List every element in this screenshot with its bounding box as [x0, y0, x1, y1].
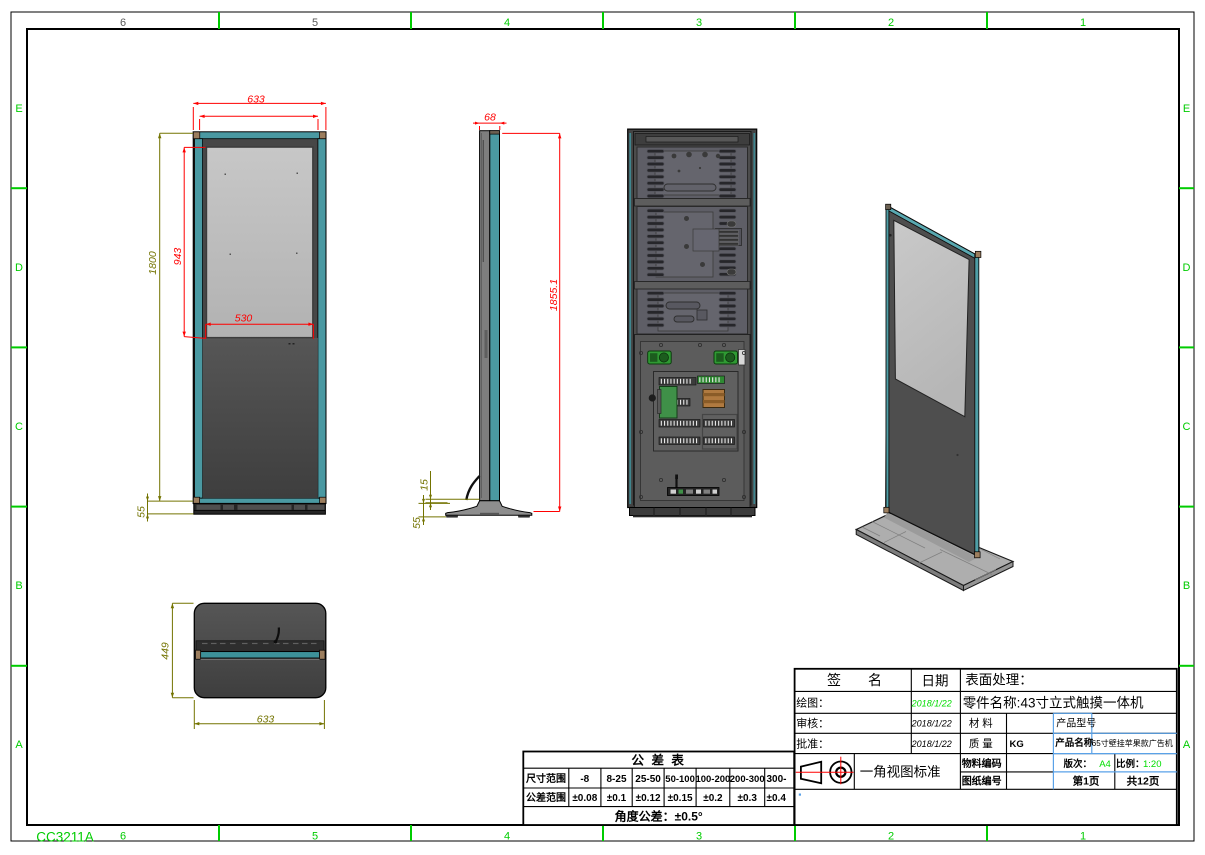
svg-text:2018/1/22: 2018/1/22: [911, 719, 952, 729]
svg-text:A: A: [1183, 739, 1191, 751]
svg-text:共12页: 共12页: [1127, 775, 1160, 788]
svg-text:图纸编号: 图纸编号: [962, 775, 1002, 788]
svg-text:8-25: 8-25: [606, 774, 626, 785]
svg-text:±0.4: ±0.4: [767, 793, 787, 804]
svg-text:产品名称: 产品名称: [1055, 737, 1094, 749]
svg-text:5: 5: [312, 831, 318, 843]
svg-text:1855.1: 1855.1: [548, 279, 560, 311]
svg-text:C: C: [15, 421, 23, 433]
svg-text:D: D: [1183, 262, 1191, 274]
svg-text:绘图：: 绘图：: [796, 696, 829, 710]
svg-text:尺寸范围: 尺寸范围: [526, 772, 566, 785]
svg-text:一角视图标准: 一角视图标准: [860, 765, 941, 780]
svg-text:表面处理：: 表面处理：: [965, 672, 1033, 687]
svg-text:A: A: [15, 739, 23, 751]
svg-text:68: 68: [484, 112, 496, 124]
svg-text:-8: -8: [580, 774, 589, 785]
svg-text:6: 6: [120, 831, 126, 843]
svg-text:5: 5: [312, 17, 318, 29]
svg-text:产品型号: 产品型号: [1056, 716, 1096, 729]
svg-text:530: 530: [235, 313, 253, 325]
svg-text:1: 1: [1080, 831, 1086, 843]
svg-text:D: D: [15, 262, 23, 274]
svg-text:2018/1/22: 2018/1/22: [911, 698, 952, 708]
svg-text:签: 签: [827, 672, 841, 688]
svg-text:1: 1: [1080, 17, 1086, 29]
svg-text:公 差 表: 公 差 表: [631, 752, 685, 767]
svg-text:版次：: 版次：: [1063, 758, 1093, 770]
svg-text:4: 4: [504, 17, 510, 29]
svg-text:E: E: [1183, 103, 1190, 115]
svg-text:300-: 300-: [767, 774, 787, 785]
svg-text:±0.08: ±0.08: [572, 793, 597, 804]
svg-text:审核：: 审核：: [796, 716, 829, 730]
svg-text:3: 3: [696, 17, 702, 29]
svg-text:C: C: [1183, 421, 1191, 433]
svg-text:2: 2: [888, 831, 894, 843]
svg-text:633: 633: [257, 713, 275, 725]
svg-text:质 量: 质 量: [969, 738, 993, 750]
svg-text:第1页: 第1页: [1073, 775, 1100, 788]
svg-text:角度公差：±0.5°: 角度公差：±0.5°: [615, 808, 703, 823]
svg-text:±0.12: ±0.12: [636, 793, 661, 804]
svg-text:±0.2: ±0.2: [703, 793, 723, 804]
svg-text:633: 633: [247, 93, 265, 105]
svg-text:±0.3: ±0.3: [738, 793, 758, 804]
svg-text:批准：: 批准：: [796, 737, 829, 751]
svg-text:15: 15: [419, 479, 431, 491]
svg-text:2: 2: [888, 17, 894, 29]
svg-text:CC3211A: CC3211A: [36, 830, 94, 845]
svg-text:A4: A4: [1099, 759, 1111, 770]
svg-text:名: 名: [868, 672, 882, 688]
svg-text:比例：: 比例：: [1116, 758, 1145, 770]
svg-text:零件名称:43寸立式触摸一体机: 零件名称:43寸立式触摸一体机: [963, 695, 1144, 710]
svg-text:50-100: 50-100: [665, 774, 695, 785]
svg-text:100-200: 100-200: [695, 774, 730, 785]
svg-text:B: B: [15, 580, 22, 592]
svg-text:公差范围: 公差范围: [526, 791, 566, 804]
svg-text:±0.1: ±0.1: [607, 793, 627, 804]
svg-text:材 料: 材 料: [969, 717, 993, 730]
svg-text:1:20: 1:20: [1143, 759, 1162, 770]
svg-text:2018/1/22: 2018/1/22: [911, 739, 952, 749]
svg-text:KG: KG: [1010, 739, 1024, 750]
svg-text:3: 3: [696, 831, 702, 843]
svg-text:943: 943: [172, 248, 184, 266]
svg-text:4: 4: [504, 831, 510, 843]
svg-text:物料编码: 物料编码: [962, 757, 1002, 770]
svg-text:E: E: [15, 103, 22, 115]
svg-text:200-300: 200-300: [730, 774, 765, 785]
svg-text:±0.15: ±0.15: [668, 793, 693, 804]
svg-text:B: B: [1183, 580, 1190, 592]
svg-text:55: 55: [411, 517, 423, 529]
svg-text:6: 6: [120, 17, 126, 29]
svg-text:55: 55: [136, 506, 148, 518]
svg-text:25-50: 25-50: [635, 774, 661, 785]
svg-text:1800: 1800: [147, 251, 159, 275]
svg-text:65寸壁挂苹果款广告机: 65寸壁挂苹果款广告机: [1092, 738, 1173, 748]
svg-text:449: 449: [160, 642, 172, 660]
svg-text:日期: 日期: [922, 673, 949, 688]
